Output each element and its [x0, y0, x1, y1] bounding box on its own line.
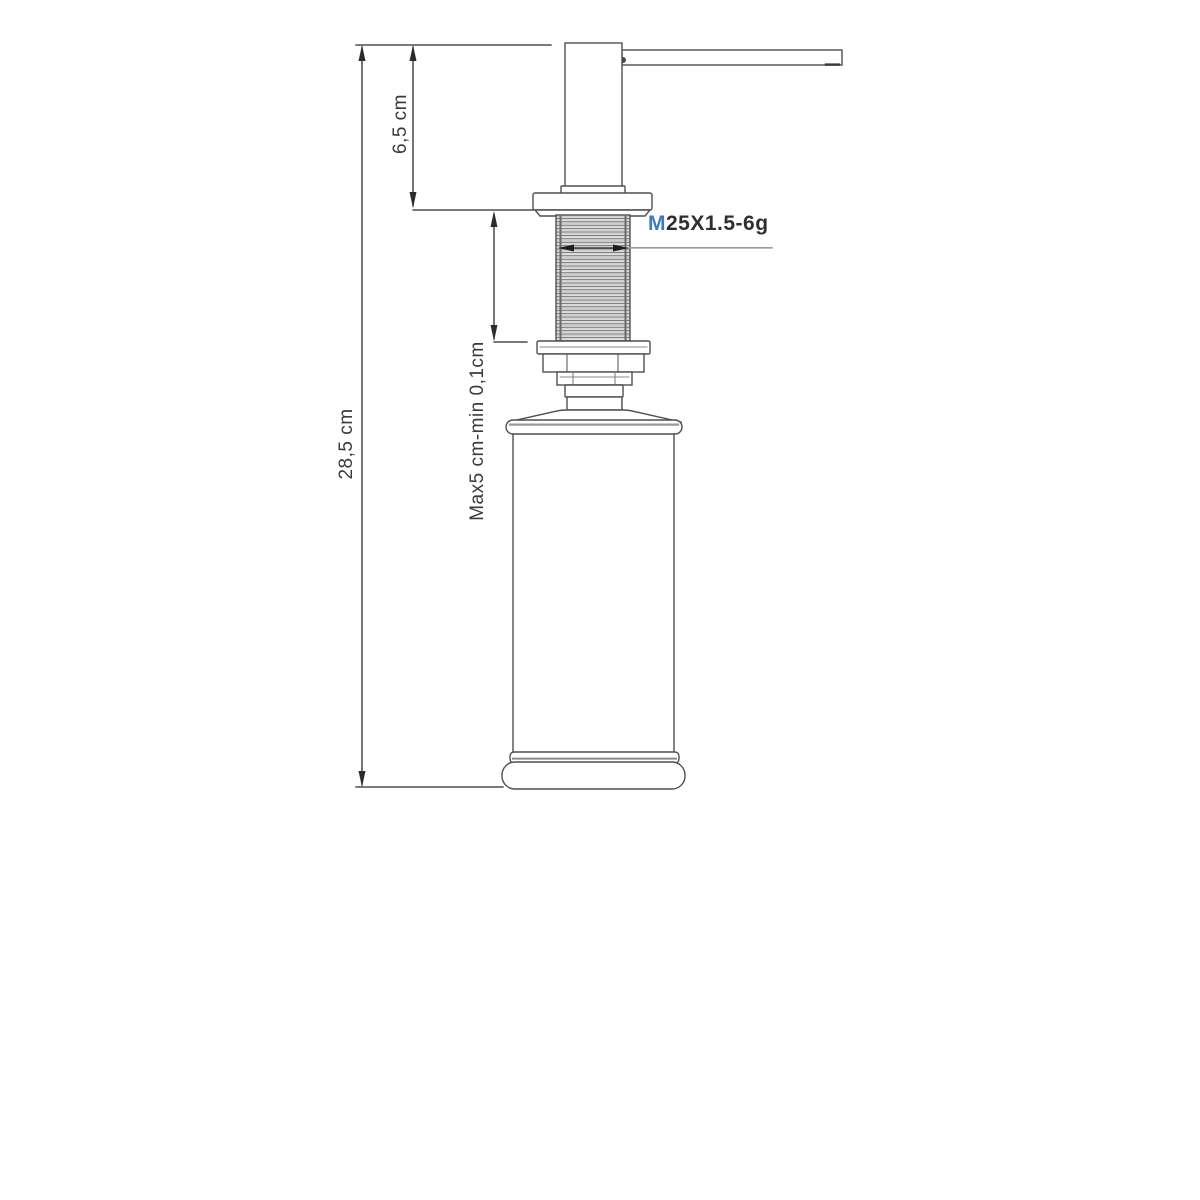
neck-ring: [565, 385, 623, 397]
arrowhead-up: [410, 45, 417, 61]
threaded-shank: [556, 215, 630, 341]
bottle-base: [502, 762, 685, 789]
pump-head: [565, 43, 622, 188]
arrowhead-up: [491, 211, 498, 227]
label-overall-height: 28,5 cm: [336, 408, 358, 479]
nut-collar: [557, 372, 632, 385]
pump-spout: [622, 50, 842, 65]
hex-nut: [543, 354, 644, 372]
label-above-counter-height: 6,5 cm: [390, 94, 412, 154]
mounting-nut-flange: [537, 341, 650, 354]
dimension-overall-height: [359, 45, 366, 787]
technical-drawing-page: 6,5 cm 28,5 cm Max5 cm-min 0,1cm M25X1.5…: [0, 0, 1200, 1200]
dimension-mounting-range: [491, 211, 498, 341]
arrowhead-down: [491, 325, 498, 341]
escutcheon-flange: [533, 193, 652, 210]
bottle-neck: [567, 397, 622, 410]
dispenser-figure: [502, 43, 842, 789]
dispenser-line-art: [0, 0, 1200, 1200]
label-thread-spec: M25X1.5-6g: [648, 212, 769, 236]
label-counter-thickness-range: Max5 cm-min 0,1cm: [467, 341, 489, 521]
arrowhead-down: [359, 771, 366, 787]
bottle-bead: [506, 420, 682, 434]
arrowhead-down: [410, 192, 417, 208]
arrowhead-up: [359, 45, 366, 61]
